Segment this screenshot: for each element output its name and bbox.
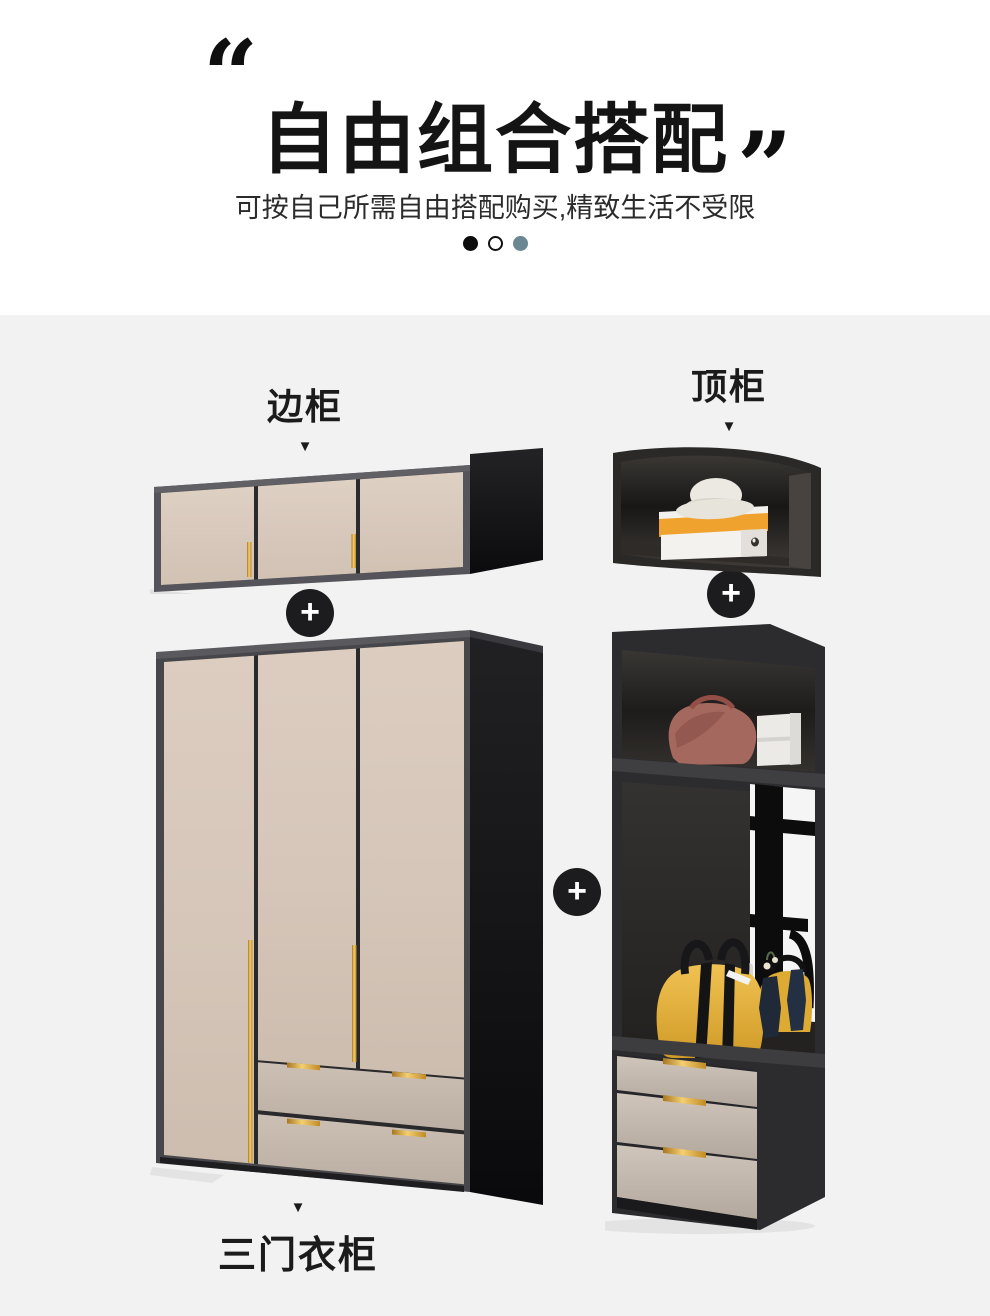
wardrobe-label-text: 三门衣柜 bbox=[218, 1224, 378, 1279]
page-title: 自由组合搭配 bbox=[0, 78, 990, 188]
three-door-wardrobe-image bbox=[150, 622, 550, 1223]
promo-image: “ ” 自由组合搭配 可按自己所需自由搭配购买,精致生活不受限 边柜 ▼ 顶柜 … bbox=[0, 0, 990, 1316]
top-cabinet-image bbox=[605, 438, 833, 588]
top-cabinet-label: 顶柜 ▼ bbox=[691, 358, 767, 434]
top-cabinet-label-text: 顶柜 bbox=[691, 358, 767, 410]
side-cabinet-image bbox=[150, 448, 546, 599]
carousel-dot-outline bbox=[488, 236, 503, 251]
tall-cabinet-image bbox=[605, 618, 830, 1239]
carousel-dot-teal bbox=[513, 236, 528, 251]
plus-icon: + bbox=[553, 868, 601, 916]
carousel-dot-active bbox=[463, 236, 478, 251]
tall-cabinet-drawers bbox=[617, 1056, 757, 1219]
side-cabinet-label-text: 边柜 bbox=[267, 378, 343, 430]
down-arrow-icon: ▼ bbox=[722, 419, 737, 434]
side-cabinet-label: 边柜 ▼ bbox=[267, 378, 343, 454]
carousel-dots bbox=[0, 236, 990, 251]
page-subtitle: 可按自己所需自由搭配购买,精致生活不受限 bbox=[0, 186, 990, 225]
